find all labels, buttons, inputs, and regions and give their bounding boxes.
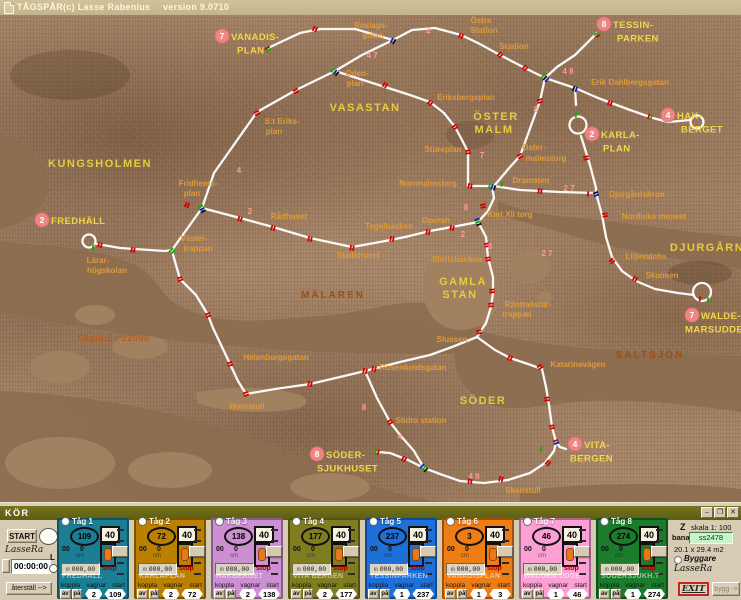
meter-prefix: m	[220, 566, 224, 573]
meter-prefix: m	[297, 566, 301, 573]
station-label: Stadion	[499, 42, 528, 51]
info-panel: Z skala 1: 100 bana ss2478 20.1 x 29.4 m…	[672, 520, 741, 600]
train-buttons-row: av på 2 72	[137, 589, 203, 599]
koppla-pa-button[interactable]: på	[380, 589, 391, 599]
route-line	[246, 371, 365, 394]
meter-value: 000,00	[611, 566, 634, 573]
vagnar-value[interactable]: 1	[547, 589, 564, 599]
train-led-icon	[523, 517, 532, 526]
train-id-badge: 46	[532, 527, 561, 546]
train-buttons-row: av på 1 3	[445, 589, 511, 599]
station-label: högskolan	[87, 266, 127, 275]
koppla-label: koppla	[523, 582, 542, 589]
train-led-icon	[61, 517, 70, 526]
slider-handle-icon[interactable]	[189, 546, 205, 557]
train-station-label: VITA BERGEN	[293, 573, 343, 580]
terminus-label: SJUKHUSET	[317, 464, 378, 475]
koppla-pa-button[interactable]: på	[534, 589, 545, 599]
slider-handle-icon[interactable]	[266, 546, 282, 557]
station-label: Öster-	[522, 143, 546, 152]
terminus-label: PLAN	[237, 46, 264, 57]
kor-title: KÖR	[5, 508, 30, 518]
water-label: MÄLAREN	[301, 288, 365, 301]
station-label: Tegelbacken	[365, 222, 413, 231]
station-label: Slussen	[437, 335, 468, 344]
slider-handle-icon[interactable]	[343, 546, 359, 557]
train-led-icon	[292, 517, 301, 526]
speed-slider[interactable]	[268, 527, 279, 577]
app-version: version 9.0710	[163, 2, 229, 12]
train-buttons-row: av på 1 46	[522, 589, 588, 599]
throttle-lever-icon[interactable]	[258, 548, 266, 561]
route-number-label: 4	[237, 166, 242, 175]
window-titlebar[interactable]: TÅGSPÅR (c) Lasse Rabenius version 9.071…	[0, 0, 741, 15]
start-label: start	[189, 582, 202, 589]
district-label: STAN	[442, 289, 477, 301]
start-station-value[interactable]: 274	[643, 589, 665, 599]
koppla-av-button[interactable]: av	[445, 589, 456, 599]
train-action-labels: koppla vagnar start	[523, 582, 587, 589]
station-label: Fridhems-	[179, 179, 218, 188]
byggare-radio[interactable]	[674, 556, 682, 564]
district-label: DJURGÅRN	[670, 241, 741, 254]
train-buttons-row: av på 2 177	[291, 589, 357, 599]
train-action-labels: koppla vagnar start	[138, 582, 202, 589]
speed-slider[interactable]	[499, 527, 510, 577]
slider-handle-icon[interactable]	[420, 546, 436, 557]
station-label: plan	[184, 189, 201, 198]
train-id-badge: 274	[609, 527, 638, 546]
stockholm-track-map[interactable]: Roslags-gatanÖstraStationStadionErik Dah…	[0, 15, 741, 502]
meter-prefix: m	[66, 566, 70, 573]
koppla-pa-button[interactable]: på	[303, 589, 314, 599]
throttle-lever-icon[interactable]	[643, 548, 651, 561]
train-action-labels: koppla vagnar start	[61, 582, 125, 589]
district-label: KUNGSHOLMEN	[48, 158, 152, 170]
train-station-label: SÖDERSJUKH.T	[601, 573, 659, 580]
koppla-av-button[interactable]: av	[60, 589, 71, 599]
water-shape	[520, 484, 741, 502]
odometer-cm-value: 0	[157, 546, 161, 553]
koppla-label: koppla	[600, 582, 619, 589]
station-marker	[500, 181, 504, 187]
map-scale-label: Skala 1 : 22000	[78, 333, 150, 343]
meter-value: 000,00	[534, 566, 557, 573]
train-name: Tåg 6	[457, 517, 478, 526]
train-panel: Tåg 8 274 40 00 0 cm m 000,00 stop SÖDER…	[596, 518, 668, 599]
koppla-pa-button[interactable]: på	[149, 589, 160, 599]
clock-mini-button[interactable]	[2, 559, 10, 573]
terminus-label: VITA-	[584, 440, 610, 451]
byggare-label: Byggare	[684, 554, 716, 563]
cm-unit-label: cm	[384, 553, 392, 559]
station-label: Helenborgsgatan	[243, 353, 308, 362]
window-buttons: –❐✕	[701, 507, 739, 518]
signature-script: LasseRa	[674, 564, 712, 574]
district-label: VASASTAN	[330, 102, 401, 114]
train-panels-row: Tåg 1 109 40 00 0 cm m 000,00 stop FREDH…	[57, 518, 668, 599]
koppla-label: koppla	[292, 582, 311, 589]
koppla-av-button[interactable]: av	[368, 589, 379, 599]
terminus-label: SÖDER-	[326, 450, 365, 461]
route-number-label: 2 7	[541, 249, 553, 258]
route-number-label: 4 7	[366, 51, 378, 60]
station-marker	[594, 32, 601, 39]
meter-value: 000,00	[226, 566, 249, 573]
train-name: Tåg 2	[149, 517, 170, 526]
odometer-cm-value: 0	[311, 546, 315, 553]
train-id-badge: 3	[455, 527, 484, 546]
train-buttons-row: av på 2 138	[214, 589, 280, 599]
station-label: Östra	[471, 16, 492, 25]
speed-slider[interactable]	[345, 527, 356, 577]
odometer-hours: 00	[370, 546, 378, 553]
station-label: gatan	[362, 31, 383, 40]
meter-prefix: m	[374, 566, 378, 573]
vagnar-value[interactable]: 1	[470, 589, 487, 599]
meter-prefix: m	[143, 566, 147, 573]
start-station-value[interactable]: 237	[412, 589, 434, 599]
vagnar-label: vagnar	[394, 582, 414, 589]
train-panel: Tåg 6 3 40 00 0 cm m 000,00 stop VANADIS…	[442, 518, 514, 599]
koppla-av-button[interactable]: av	[214, 589, 225, 599]
start-label: start	[574, 582, 587, 589]
train-station-label: VANADISPLAN	[447, 573, 500, 580]
station-label: Karl XII torg	[487, 210, 532, 219]
station-label: Liljevalchs	[626, 252, 667, 261]
train-led-icon	[215, 517, 224, 526]
bana-value-field[interactable]: ss2478	[689, 532, 733, 544]
station-label: Dramaten	[513, 176, 550, 185]
train-name: Tåg 7	[534, 517, 555, 526]
train-legend: Tåg 3	[215, 517, 247, 526]
train-station-label: KARLAPLAN	[139, 573, 185, 580]
speed-slider[interactable]	[191, 527, 202, 577]
train-name: Tåg 1	[72, 517, 93, 526]
slider-handle-icon[interactable]	[112, 546, 128, 557]
clock-display: 00:00:00	[11, 559, 51, 574]
district-label: MALM	[475, 124, 514, 136]
train-id-badge: 177	[301, 527, 330, 546]
cm-unit-label: cm	[538, 553, 546, 559]
run-lamp	[39, 528, 58, 545]
koppla-label: koppla	[369, 582, 388, 589]
bygg-mode-button[interactable]: bygg ->	[712, 582, 740, 596]
meter-value: 000,00	[380, 566, 403, 573]
clock-l-label: L	[50, 553, 55, 562]
station-label: trappan	[502, 310, 531, 319]
route-number-label: 8	[488, 242, 493, 251]
start-label: start	[497, 582, 510, 589]
train-legend: Tåg 7	[523, 517, 555, 526]
slider-handle-icon[interactable]	[574, 546, 590, 557]
station-label: Nordiska museet	[622, 212, 687, 221]
koppla-pa-button[interactable]: på	[226, 589, 237, 599]
route-line	[494, 186, 596, 193]
route-number-label: 4 8	[468, 472, 480, 481]
koppla-label: koppla	[61, 582, 80, 589]
close-button[interactable]: ✕	[727, 507, 739, 518]
koppla-av-button[interactable]: av	[599, 589, 610, 599]
route-number-label: 8	[534, 105, 539, 114]
koppla-pa-button[interactable]: på	[457, 589, 468, 599]
route-line	[335, 40, 393, 71]
vagnar-value[interactable]: 2	[239, 589, 256, 599]
route-line	[335, 71, 468, 186]
train-name: Tåg 4	[303, 517, 324, 526]
vagnar-label: vagnar	[317, 582, 337, 589]
station-label: Eriksbergsplan	[437, 93, 495, 102]
turning-loop	[570, 117, 587, 134]
station-label: Rosenlundsgatan	[379, 363, 446, 372]
start-station-value[interactable]: 109	[104, 589, 126, 599]
train-name: Tåg 8	[611, 517, 632, 526]
start-label: start	[651, 582, 664, 589]
terminus-number: 2	[40, 215, 45, 225]
route-number-label: 8	[362, 403, 367, 412]
terminus-label: HAK-	[677, 111, 702, 122]
control-deck: START LasseRa 00:00:00 L återställ --> T…	[0, 520, 741, 600]
meter-value: 000,00	[457, 566, 480, 573]
slider-handle-icon[interactable]	[497, 546, 513, 557]
vagnar-label: vagnar	[471, 582, 491, 589]
station-label: trappan	[183, 244, 212, 253]
odometer-hours: 00	[447, 546, 455, 553]
app-copyright: (c) Lasse Rabenius	[63, 2, 150, 12]
vagnar-label: vagnar	[240, 582, 260, 589]
train-panel: Tåg 2 72 40 00 0 cm m 000,00 stop KARLAP…	[134, 518, 206, 599]
throttle-lever-icon[interactable]	[566, 548, 574, 561]
route-number-label: 4	[398, 432, 403, 441]
train-action-labels: koppla vagnar start	[292, 582, 356, 589]
terminus-label: WALDE-	[701, 311, 741, 322]
station-label: S:t Eriks-	[264, 117, 299, 126]
vagnar-value[interactable]: 2	[85, 589, 102, 599]
cm-unit-label: cm	[615, 553, 623, 559]
koppla-av-button[interactable]: av	[522, 589, 533, 599]
train-legend: Tåg 6	[446, 517, 478, 526]
station-label: Stadshuset	[336, 251, 379, 260]
exit-button[interactable]: EXIT	[678, 582, 709, 596]
station-marker	[480, 203, 486, 209]
train-led-icon	[369, 517, 378, 526]
station-label: Skansen	[646, 271, 679, 280]
throttle-lever-icon[interactable]	[412, 548, 420, 561]
odometer-cm-value: 0	[388, 546, 392, 553]
train-id-badge: 138	[224, 527, 253, 546]
vagnar-value[interactable]: 2	[316, 589, 333, 599]
train-id-badge: 237	[378, 527, 407, 546]
speed-slider[interactable]	[653, 527, 664, 577]
vagnar-label: vagnar	[625, 582, 645, 589]
terminus-label: BERGET	[681, 125, 723, 136]
start-station-value[interactable]: 46	[566, 589, 588, 599]
vagnar-value[interactable]: 2	[162, 589, 179, 599]
train-legend: Tåg 1	[61, 517, 93, 526]
terminus-label: PLAN	[603, 144, 630, 155]
vagnar-label: vagnar	[163, 582, 183, 589]
z-label: Z	[680, 522, 686, 532]
start-label: start	[343, 582, 356, 589]
meter-prefix: m	[451, 566, 455, 573]
koppla-pa-button[interactable]: på	[72, 589, 83, 599]
route-number-label: 2	[248, 207, 253, 216]
route-number-label: 8	[464, 203, 469, 212]
throttle-lever-icon[interactable]	[104, 548, 112, 561]
speed-slider[interactable]	[576, 527, 587, 577]
meter-value: 000,00	[149, 566, 172, 573]
terminus-number: 7	[690, 310, 695, 320]
cm-unit-label: cm	[76, 553, 84, 559]
odometer-cm-value: 0	[465, 546, 469, 553]
odometer-hours: 00	[524, 546, 532, 553]
train-legend: Tåg 8	[600, 517, 632, 526]
district-label: GAMLA	[439, 276, 487, 288]
train-action-labels: koppla vagnar start	[600, 582, 664, 589]
station-label: Roslags-	[354, 21, 388, 30]
vagnar-value[interactable]: 1	[624, 589, 641, 599]
terminus-label: PARKEN	[617, 34, 659, 45]
train-name: Tåg 5	[380, 517, 401, 526]
route-line	[424, 442, 556, 483]
train-panel: Tåg 7 46 40 00 0 cm m 000,00 stop WALDEM…	[519, 518, 591, 599]
station-label: Katarinavägen	[550, 360, 605, 369]
train-action-labels: koppla vagnar start	[215, 582, 279, 589]
route-line	[202, 208, 478, 247]
district-label: SÖDER	[460, 394, 507, 407]
terminus-number: 2	[590, 129, 595, 139]
cm-unit-label: cm	[461, 553, 469, 559]
start-station-value[interactable]: 177	[335, 589, 357, 599]
terminus-number: 7	[220, 31, 225, 41]
minimize-button[interactable]: –	[701, 507, 713, 518]
koppla-label: koppla	[446, 582, 465, 589]
train-buttons-row: av på 1 274	[599, 589, 665, 599]
meter-value: 000,00	[303, 566, 326, 573]
koppla-av-button[interactable]: av	[291, 589, 302, 599]
train-station-label: WALDEM.UDDE	[524, 573, 580, 580]
station-label: Station	[470, 26, 497, 35]
vagnar-value[interactable]: 1	[393, 589, 410, 599]
route-number-label: 7	[480, 151, 485, 160]
odometer-cm-value: 0	[619, 546, 623, 553]
train-panel: Tåg 1 109 40 00 0 cm m 000,00 stop FREDH…	[57, 518, 129, 599]
throttle-lever-icon[interactable]	[489, 548, 497, 561]
map-overlay-svg: Roslags-gatanÖstraStationStadionErik Dah…	[0, 15, 741, 502]
station-label: Rådhuset	[271, 212, 308, 221]
meter-value: 000,00	[72, 566, 95, 573]
odometer-hours: 00	[139, 546, 147, 553]
train-panel: Tåg 3 138 40 00 0 cm m 000,00 stop HAKBE…	[211, 518, 283, 599]
water-shape	[0, 241, 483, 354]
start-button[interactable]: START	[7, 529, 37, 543]
start-label: start	[420, 582, 433, 589]
start-label: start	[112, 582, 125, 589]
station-label: Stureplan	[425, 145, 462, 154]
terminus-label: BERGEN	[570, 454, 613, 465]
throttle-lever-icon[interactable]	[181, 548, 189, 561]
station-label: Södra station	[395, 416, 446, 425]
station-label: malmstorg	[526, 154, 567, 163]
train-id-badge: 109	[70, 527, 99, 546]
train-action-labels: koppla vagnar start	[446, 582, 510, 589]
terminus-number: 4	[573, 439, 578, 449]
odometer-hours: 00	[601, 546, 609, 553]
train-name: Tåg 3	[226, 517, 247, 526]
station-label: Lärar-	[87, 256, 110, 265]
throttle-lever-icon[interactable]	[335, 548, 343, 561]
slider-handle-icon[interactable]	[651, 546, 667, 557]
station-label: Norrmalmstorg	[399, 179, 457, 188]
route-number-label: 4 8	[562, 67, 574, 76]
train-panel: Tåg 4 177 40 00 0 cm m 000,00 stop VITA …	[288, 518, 360, 599]
train-station-label: FREDHALL	[62, 573, 102, 580]
odometer-hours: 00	[293, 546, 301, 553]
station-marker	[540, 446, 543, 452]
speed-slider[interactable]	[114, 527, 125, 577]
train-buttons-row: av på 2 109	[60, 589, 126, 599]
district-label: ÖSTER	[473, 110, 518, 123]
terminus-number: 4	[666, 110, 671, 120]
signature-script: LasseRa	[5, 545, 43, 555]
start-station-value[interactable]: 138	[258, 589, 280, 599]
train-id-badge: 72	[147, 527, 176, 546]
terminus-label: MARSUDDE	[685, 325, 741, 336]
terminus-number: 8	[602, 19, 607, 29]
station-label: Erik Dahlbergsgatan	[591, 78, 669, 87]
route-line	[393, 28, 545, 78]
maximize-button[interactable]: ❐	[714, 507, 726, 518]
odometer-cm-value: 0	[542, 546, 546, 553]
koppla-label: koppla	[138, 582, 157, 589]
terminus-number: 8	[315, 449, 320, 459]
koppla-pa-button[interactable]: på	[611, 589, 622, 599]
odometer-cm-value: 0	[80, 546, 84, 553]
train-legend: Tåg 5	[369, 517, 401, 526]
train-legend: Tåg 2	[138, 517, 170, 526]
route-line	[581, 136, 596, 188]
model-scale-label: skala 1: 100	[691, 523, 731, 532]
train-action-labels: koppla vagnar start	[369, 582, 433, 589]
station-label: plan	[347, 79, 364, 88]
route-number-label: 2 7	[563, 184, 575, 193]
route-number-label: 2	[461, 230, 466, 239]
train-led-icon	[446, 517, 455, 526]
train-station-label: HAKBERGET	[216, 573, 263, 580]
train-station-label: TESSINPARKEN	[370, 573, 428, 580]
station-label: Slottsbacken	[432, 255, 482, 264]
station-label: Räntmästar-	[505, 300, 552, 309]
station-label: Hornstull	[229, 402, 264, 411]
station-label: Väster-	[180, 234, 207, 243]
train-legend: Tåg 4	[292, 517, 324, 526]
start-station-value[interactable]: 72	[181, 589, 203, 599]
terminus-label: FREDHÄLL	[51, 216, 105, 227]
odometer-cm-value: 0	[234, 546, 238, 553]
speed-slider[interactable]	[422, 527, 433, 577]
route-line	[202, 71, 335, 208]
station-label: plan	[266, 127, 283, 136]
terminus-label: KARLA-	[601, 130, 640, 141]
cm-unit-label: cm	[307, 553, 315, 559]
koppla-av-button[interactable]: av	[137, 589, 148, 599]
terminus-label: TESSIN-	[613, 20, 653, 31]
reset-button[interactable]: återställ -->	[6, 582, 52, 595]
route-number-label: 4	[426, 27, 431, 36]
water-label: SALTSJÖN	[616, 348, 685, 361]
terminus-label: VANADIS-	[231, 32, 279, 43]
start-station-value[interactable]: 3	[489, 589, 511, 599]
